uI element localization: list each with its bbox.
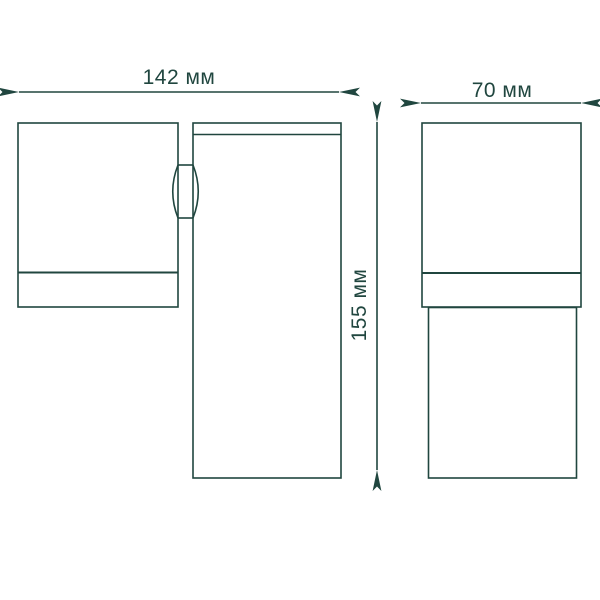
- height-dimension-label: 155 мм: [348, 269, 371, 342]
- side-body-outline: [429, 308, 577, 479]
- technical-drawing: 142 мм 70 мм 155 мм: [0, 0, 600, 600]
- drawing-linework: [18, 92, 581, 478]
- side-view: [422, 123, 581, 478]
- side-width-dimension-label: 70 мм: [472, 79, 533, 102]
- dimension-labels: 142 мм 70 мм 155 мм: [143, 66, 533, 341]
- drawing-canvas: 142 мм 70 мм 155 мм: [0, 0, 600, 600]
- front-body-column-outline: [193, 123, 341, 478]
- side-head-outline: [422, 123, 581, 307]
- front-lamp-head-outline: [18, 123, 178, 307]
- front-view: [18, 123, 341, 478]
- front-width-dimension-label: 142 мм: [143, 66, 216, 89]
- hinge-joint: [173, 165, 199, 218]
